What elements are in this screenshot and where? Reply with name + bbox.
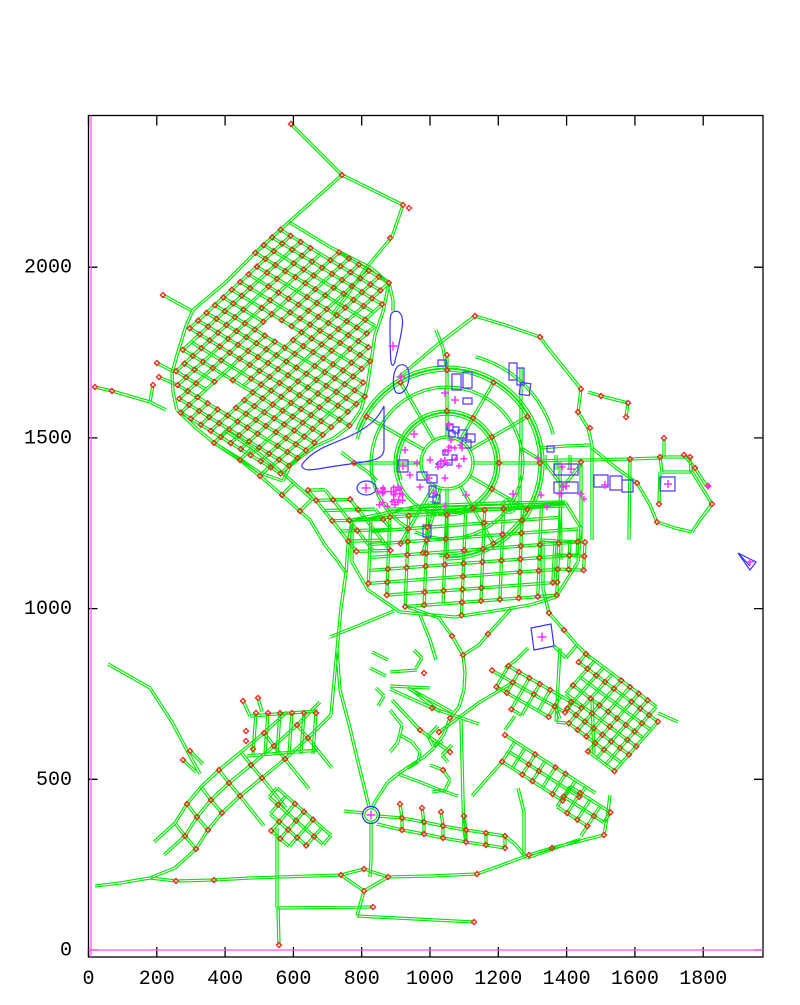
svg-text:1200: 1200	[474, 968, 522, 991]
svg-text:200: 200	[139, 968, 175, 991]
svg-text:1000: 1000	[24, 598, 72, 621]
svg-text:800: 800	[344, 968, 380, 991]
svg-text:1500: 1500	[24, 427, 72, 450]
svg-text:500: 500	[36, 769, 72, 792]
svg-text:2000: 2000	[24, 257, 72, 280]
svg-text:1000: 1000	[406, 968, 454, 991]
svg-text:400: 400	[207, 968, 243, 991]
svg-text:600: 600	[275, 968, 311, 991]
svg-text:1800: 1800	[679, 968, 727, 991]
svg-text:0: 0	[60, 940, 72, 963]
svg-text:1400: 1400	[543, 968, 591, 991]
svg-text:1600: 1600	[611, 968, 659, 991]
svg-text:0: 0	[82, 968, 94, 991]
